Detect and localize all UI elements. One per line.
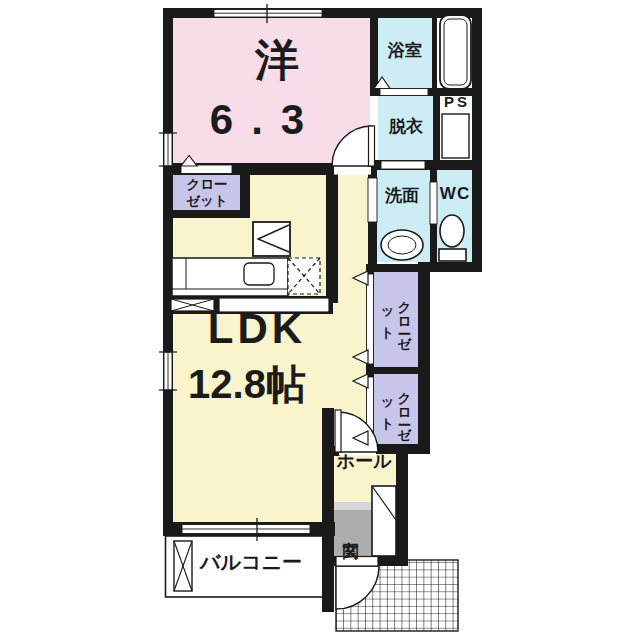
label-closet-upper: クロー ゼット [173, 174, 241, 212]
label-washroom: 洗面 [385, 187, 419, 206]
bathtub [440, 15, 471, 89]
washbasin [381, 230, 423, 260]
label-entrance: 玄関 [339, 506, 361, 554]
label-closet-b: クローゼット [375, 378, 417, 440]
western-room-door [332, 126, 375, 166]
kitchen-counter [172, 258, 288, 296]
label-pipe-space: PS [444, 94, 470, 111]
label-western-room: 洋 [255, 36, 299, 84]
label-wc: WC [440, 185, 470, 204]
label-ldk: LDK [208, 306, 306, 352]
label-ldk-size: 12.8帖 [188, 362, 306, 406]
refrigerator [253, 222, 290, 256]
stove [288, 258, 320, 294]
label-balcony: バルコニー [200, 551, 302, 573]
label-closet-a: クローゼット [375, 287, 417, 349]
label-hall: ホール [337, 452, 392, 472]
pipe-space-box [442, 114, 469, 158]
label-bathroom: 浴室 [388, 42, 422, 61]
label-dressing: 脱衣 [389, 118, 423, 137]
label-western-size: 6.3 [210, 97, 322, 143]
toilet [439, 215, 466, 261]
shoe-cabinet [372, 486, 396, 556]
floor-plan: 洋 6.3 浴室 脱衣 PS 洗面 WC クロー ゼット LDK 12.8帖 ク… [0, 0, 640, 640]
